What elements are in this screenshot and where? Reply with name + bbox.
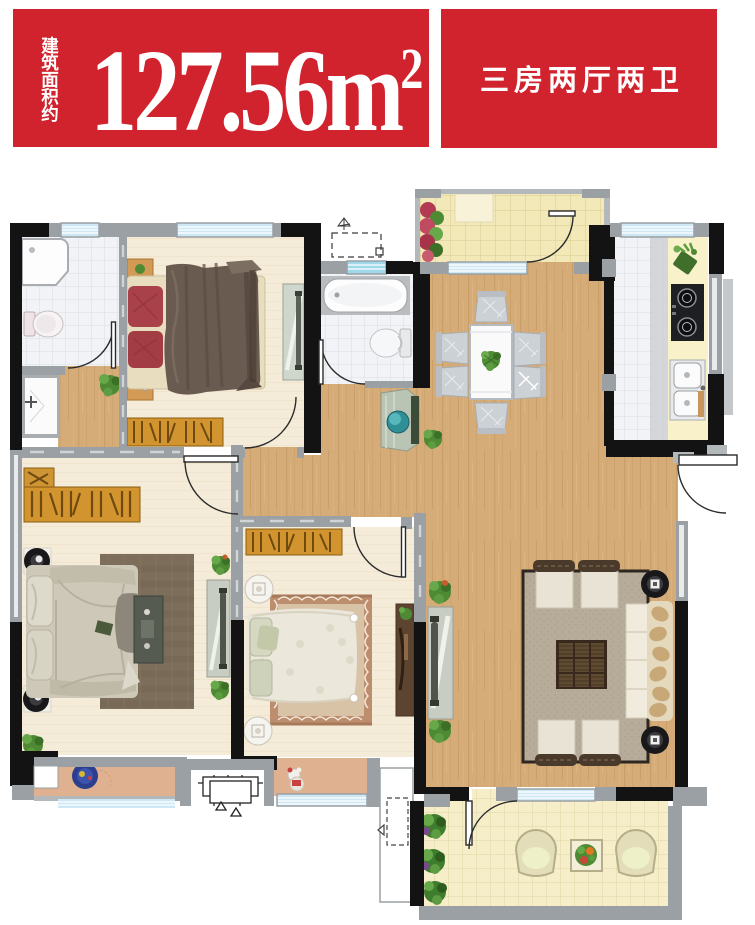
svg-text:127.56m2: 127.56m2 [90,26,421,156]
svg-text:三房两厅两卫: 三房两厅两卫 [480,64,684,97]
svg-text:约: 约 [41,104,59,124]
